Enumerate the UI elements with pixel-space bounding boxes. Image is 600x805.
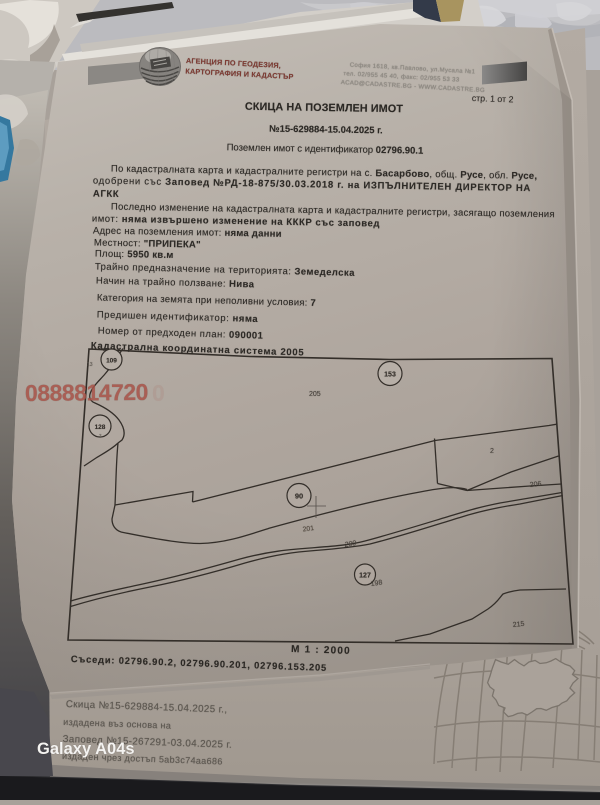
- svg-text:0: 0: [152, 380, 165, 406]
- svg-text:СКИЦА НА ПОЗЕМЛЕН ИМОТ: СКИЦА НА ПОЗЕМЛЕН ИМОТ: [245, 101, 404, 115]
- svg-text:127: 127: [359, 573, 371, 580]
- svg-text:Площ: 5950 кв.м: Площ: 5950 кв.м: [95, 249, 174, 262]
- svg-text:2: 2: [490, 448, 494, 455]
- svg-text:128: 128: [95, 424, 106, 431]
- svg-text:0888814720: 0888814720: [25, 379, 148, 406]
- svg-text:М 1 : 2000: М 1 : 2000: [291, 644, 351, 657]
- svg-text:205: 205: [309, 391, 321, 398]
- svg-text:215: 215: [512, 621, 524, 629]
- svg-text:13: 13: [87, 362, 93, 368]
- svg-text:АГКК: АГКК: [93, 189, 119, 200]
- svg-text:109: 109: [106, 358, 117, 365]
- svg-text:90: 90: [295, 492, 303, 501]
- svg-text:153: 153: [384, 372, 396, 379]
- svg-text:Galaxy A04s: Galaxy A04s: [37, 740, 135, 758]
- svg-text:206: 206: [529, 481, 541, 489]
- svg-text:№15-629884-15.04.2025 г.: №15-629884-15.04.2025 г.: [269, 123, 383, 136]
- svg-text:стр. 1 от 2: стр. 1 от 2: [472, 93, 514, 104]
